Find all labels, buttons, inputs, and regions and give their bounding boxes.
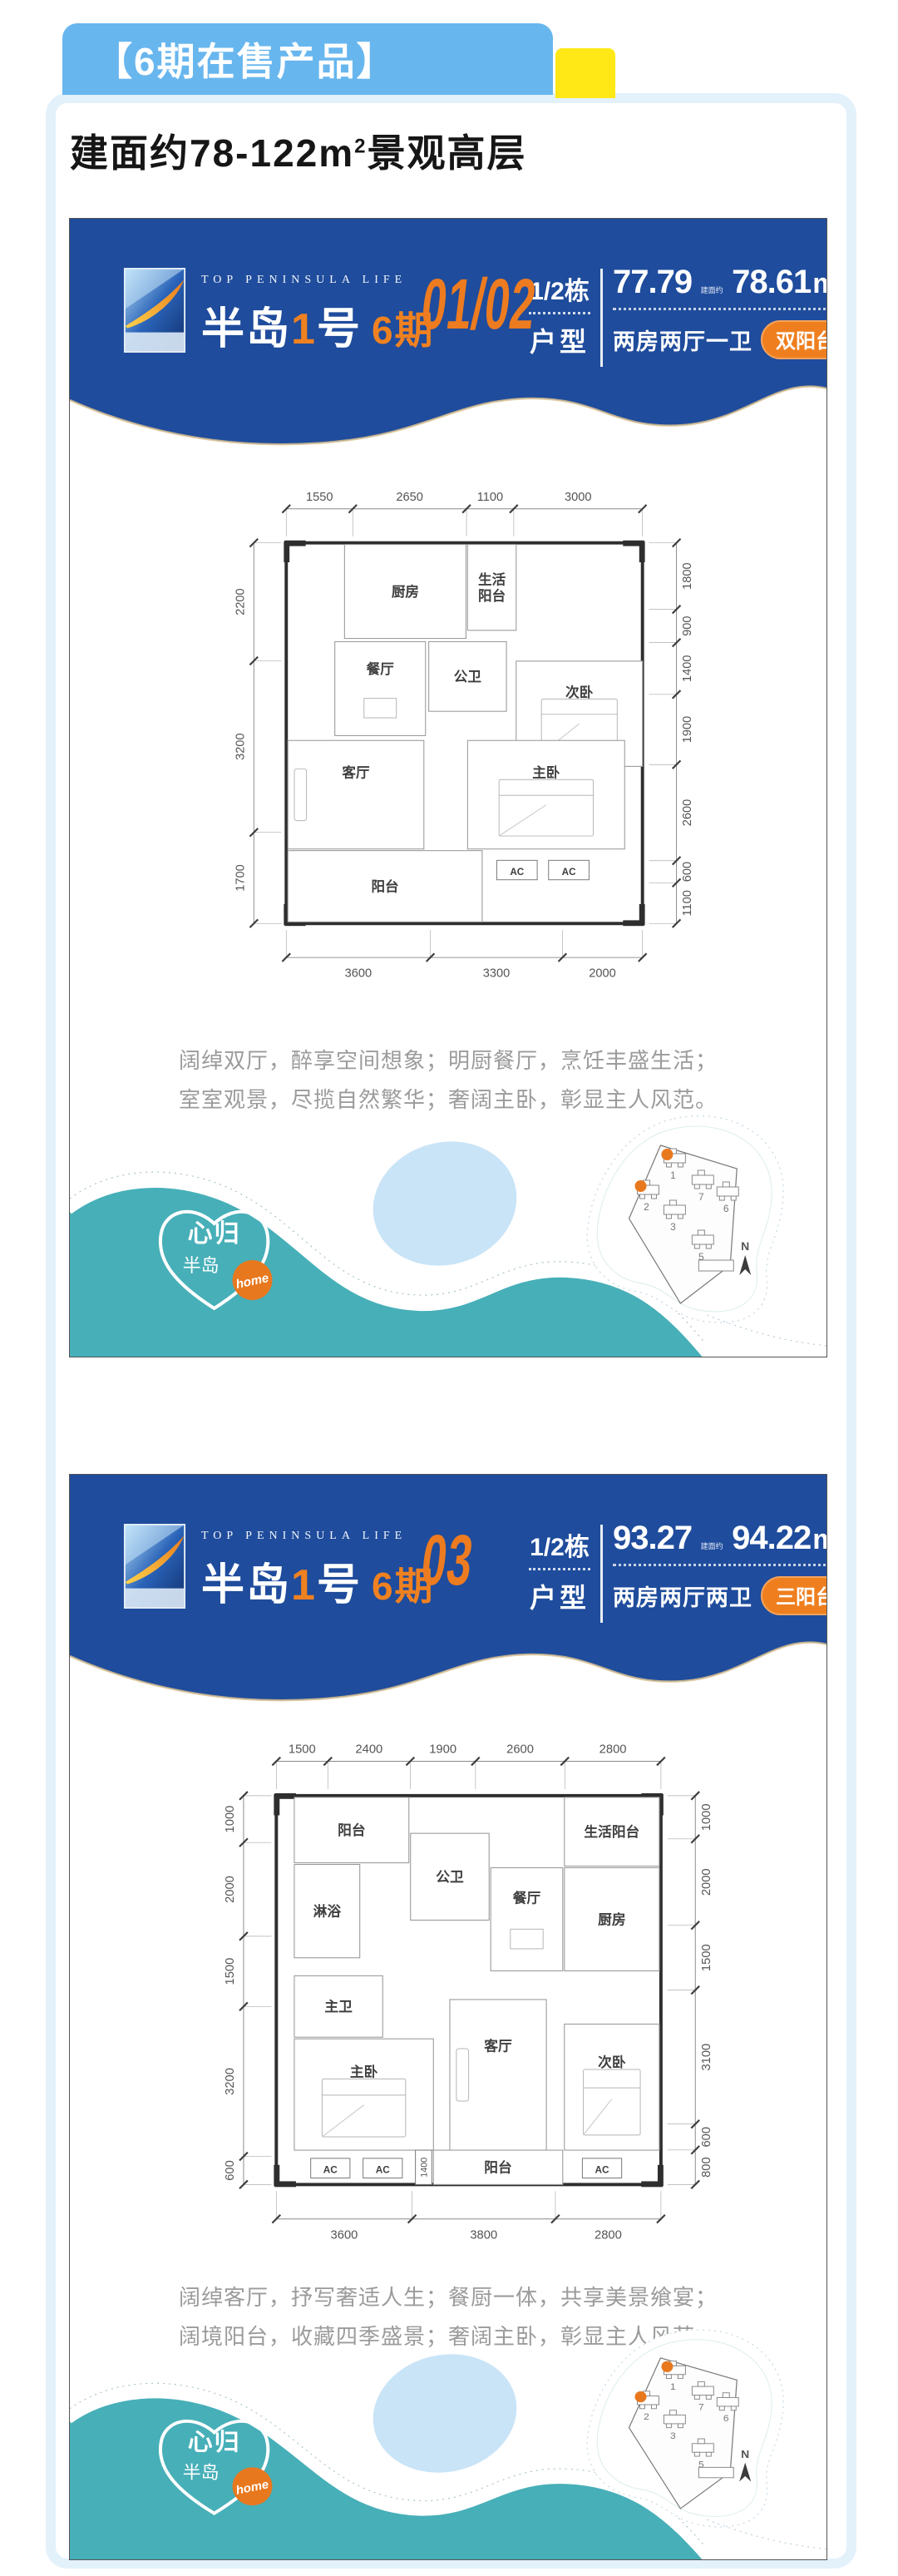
page: 【6期在售产品】 建面约78-122m2景观高层 TOP PENINSULA L…: [0, 0, 898, 2576]
dim-label: 2600: [506, 1743, 534, 1757]
dotted-separator: [613, 308, 826, 310]
svg-text:心归: 心归: [188, 1220, 241, 1248]
dim-label: 1100: [681, 890, 694, 916]
area-note: 建面约: [701, 286, 723, 294]
brand-logo-group: TOP PENINSULA LIFE 半岛1号6期: [123, 267, 435, 356]
building-number: 6: [723, 1203, 729, 1214]
description-line: 阔绰双厅，醉享空间想象；明厨餐厅，烹饪丰盛生活；: [179, 1041, 718, 1080]
dim-label: 1500: [700, 1944, 713, 1971]
dotted-separator: [529, 1568, 590, 1570]
brand-tagline: TOP PENINSULA LIFE: [201, 274, 435, 287]
brand-logo-icon: [123, 1523, 186, 1609]
room-label: 餐厅: [367, 660, 395, 677]
dim-label: 2400: [355, 1743, 382, 1757]
room-label: AC: [595, 2164, 610, 2176]
floor-plan-wrap: 阳台淋浴公卫餐厅生活阳台厨房主卫主卧客厅次卧阳台1400ACACAC150024…: [70, 1726, 826, 2267]
room-label: 主卫: [324, 1998, 353, 2015]
blue-blob-decor: [356, 1122, 534, 1285]
brand-name-num: 1: [291, 1561, 317, 1609]
dotted-separator: [529, 312, 590, 314]
svg-text:半岛: 半岛: [183, 2463, 220, 2482]
dim-label: 2000: [589, 967, 615, 981]
area-range: 93.27 建面约 94.22 m2: [613, 1520, 826, 1557]
room-label: 餐厅: [512, 1890, 541, 1906]
building-label: 1/2栋: [529, 1526, 590, 1563]
dim-label: 600: [700, 2127, 713, 2148]
building-number: 7: [698, 1191, 704, 1203]
brand-name: 半岛1号6期: [201, 1550, 435, 1612]
page-title-sup: 2: [354, 136, 367, 158]
area-from: 93.27: [613, 1520, 692, 1557]
room-label: 公卫: [436, 1869, 464, 1885]
area-unit: m2: [812, 268, 826, 300]
area-dash: 建面约: [693, 1538, 730, 1553]
dim-label: 2650: [396, 491, 422, 504]
on-sale-marker: [635, 1180, 647, 1192]
on-sale-marker: [661, 1149, 673, 1160]
dim-label: 1100: [477, 491, 503, 504]
dim-label: 600: [224, 2160, 237, 2181]
building-number: 2: [644, 1201, 649, 1213]
brand-logo-icon: [123, 267, 186, 354]
area-from: 77.79: [613, 264, 692, 301]
on-sale-marker: [635, 2391, 647, 2402]
dim-label: 1700: [234, 864, 248, 891]
svg-text:心归: 心归: [188, 2429, 241, 2455]
dim-label: 2000: [700, 1868, 713, 1896]
room-label: AC: [562, 867, 576, 878]
building-number: 6: [723, 2413, 729, 2424]
brand-name-b: 号: [317, 1561, 362, 1609]
svg-text:N: N: [741, 1239, 749, 1253]
room-label: 主卧: [350, 2064, 378, 2080]
area-block: 93.27 建面约 94.22 m2 两房两厅两卫 三阳台: [613, 1520, 826, 1615]
brand-text-block: TOP PENINSULA LIFE 半岛1号6期: [201, 1523, 435, 1612]
floor-plan-0102: 厨房生活阳台公卫餐厅次卧客厅主卧阳台ACAC155026501100300036…: [141, 470, 756, 995]
banner-wave-decor: [70, 352, 826, 462]
room-label: 公卫: [454, 669, 482, 685]
dotted-separator: [613, 1564, 826, 1566]
room-label: 淋浴: [313, 1903, 342, 1920]
unit-banner: TOP PENINSULA LIFE 半岛1号6期 01/02 1/2栋 户型 …: [70, 219, 826, 462]
dim-label: 3200: [234, 733, 248, 759]
dim-label: 1500: [289, 1743, 316, 1757]
unit-card-0102: TOP PENINSULA LIFE 半岛1号6期 01/02 1/2栋 户型 …: [69, 218, 827, 1357]
building-block: 1/2栋 户型: [529, 1526, 590, 1615]
page-title: 建面约78-122m2景观高层: [70, 123, 527, 178]
section-badge: 【6期在售产品】: [62, 23, 553, 95]
room-label: 客厅: [342, 764, 370, 781]
dim-label: 1550: [306, 491, 333, 504]
dim-label: 1000: [700, 1803, 713, 1831]
building-number: 7: [698, 2402, 704, 2413]
unit-number: 01/02: [417, 262, 485, 348]
room-label: AC: [510, 867, 524, 878]
area-to: 78.61: [732, 264, 811, 301]
floor-plan-wrap: 厨房生活阳台公卫餐厅次卧客厅主卧阳台ACAC155026501100300036…: [70, 470, 826, 995]
brand-text-block: TOP PENINSULA LIFE 半岛1号6期: [201, 267, 435, 356]
svg-text:N: N: [741, 2448, 749, 2460]
footer-art: 心归半岛home123567N: [70, 1105, 826, 1357]
floor-plan-03: 阳台淋浴公卫餐厅生活阳台厨房主卫主卧客厅次卧阳台1400ACACAC150024…: [137, 1726, 759, 2267]
area-note: 建面约: [701, 1542, 723, 1550]
room-label: 次卧: [565, 684, 594, 700]
banner-wave-decor: [70, 1608, 826, 1718]
brand-name-b: 号: [317, 305, 362, 354]
dim-label: 1900: [681, 716, 694, 743]
room-label: 1400: [419, 2158, 429, 2178]
dim-label: 2600: [681, 799, 694, 826]
dim-label: 3200: [224, 2068, 237, 2095]
area-dash: 建面约: [693, 282, 730, 297]
building-number: 1: [670, 1169, 676, 1181]
blue-blob-decor: [356, 2336, 534, 2491]
room-label: 厨房: [392, 583, 419, 600]
description-line: 阔绰客厅，抒写奢适人生；餐厨一体，共享美景飨宴；: [179, 2278, 718, 2317]
dim-label: 3600: [331, 2228, 358, 2242]
room-label: 生活: [478, 571, 506, 587]
building-number: 3: [670, 1221, 676, 1233]
dim-label: 800: [700, 2157, 713, 2178]
building-number: 3: [670, 2430, 676, 2441]
area-unit: m2: [812, 1524, 826, 1556]
dim-label: 600: [681, 862, 694, 882]
dim-label: 1900: [429, 1743, 456, 1757]
room-label: 主卧: [532, 764, 560, 781]
footer-art: 心归半岛home123567N: [70, 2320, 826, 2559]
unit-number: 03: [417, 1518, 485, 1604]
dim-label: 1800: [681, 562, 694, 589]
room-label: 阳台: [371, 878, 398, 894]
page-title-suffix: 景观高层: [368, 131, 527, 175]
dim-label: 3300: [483, 967, 510, 981]
dim-label: 2000: [224, 1876, 237, 1903]
room-label: 阳台: [484, 2159, 511, 2176]
dim-label: 2800: [595, 2228, 622, 2242]
dim-label: 2800: [599, 1743, 627, 1757]
brand-name-num: 1: [291, 305, 317, 354]
dim-label: 1000: [224, 1806, 237, 1833]
area-block: 77.79 建面约 78.61 m2 两房两厅一卫 双阳台: [613, 264, 826, 359]
dim-label: 3600: [345, 967, 372, 981]
dim-label: 2200: [234, 588, 248, 615]
svg-text:半岛: 半岛: [183, 1255, 220, 1276]
dim-label: 900: [681, 616, 694, 635]
room-label: 阳台: [478, 587, 506, 604]
room-label: 次卧: [598, 2054, 626, 2070]
yellow-tab-decor: [555, 48, 615, 98]
dim-label: 3000: [565, 491, 591, 504]
room-label: AC: [376, 2164, 391, 2176]
page-title-text: 建面约78-122m: [70, 131, 354, 175]
dim-label: 1500: [224, 1958, 237, 1985]
unit-banner: TOP PENINSULA LIFE 半岛1号6期 03 1/2栋 户型 93.…: [70, 1475, 826, 1718]
brand-logo-group: TOP PENINSULA LIFE 半岛1号6期: [123, 1523, 435, 1612]
room-label: AC: [323, 2164, 338, 2176]
brand-tagline: TOP PENINSULA LIFE: [201, 1530, 435, 1543]
room-label: 厨房: [598, 1911, 625, 1927]
unit-card-03: TOP PENINSULA LIFE 半岛1号6期 03 1/2栋 户型 93.…: [69, 1474, 827, 2560]
area-to: 94.22: [732, 1520, 811, 1557]
dim-label: 1400: [681, 655, 694, 681]
dim-label: 3100: [700, 2044, 713, 2071]
building-number: 2: [644, 2411, 649, 2422]
brand-name-a: 半岛: [201, 1561, 291, 1609]
brand-name: 半岛1号6期: [201, 294, 435, 356]
area-range: 77.79 建面约 78.61 m2: [613, 264, 826, 301]
brand-name-a: 半岛: [201, 305, 291, 354]
on-sale-marker: [661, 2361, 673, 2372]
room-label: 生活阳台: [584, 1823, 639, 1840]
room-label: 客厅: [483, 2038, 512, 2054]
building-number: 1: [670, 2381, 676, 2392]
room-label: 阳台: [338, 1822, 365, 1838]
dim-label: 3800: [470, 2228, 497, 2242]
section-badge-label: 【6期在售产品】: [94, 32, 397, 87]
